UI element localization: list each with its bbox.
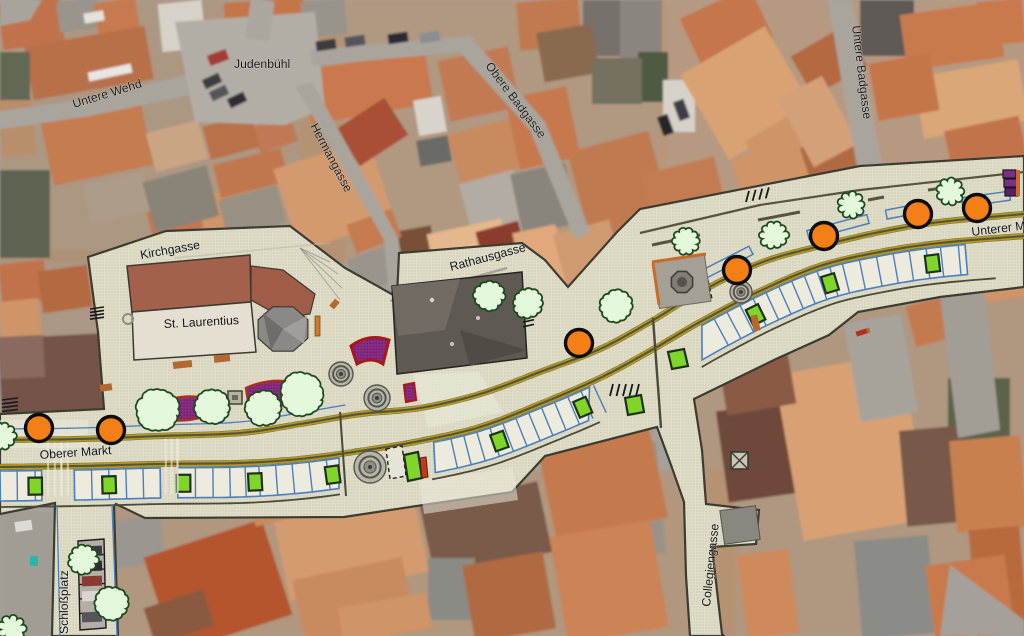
svg-text:Schloßplatz: Schloßplatz <box>57 570 71 634</box>
svg-text:Judenbühl: Judenbühl <box>234 57 290 71</box>
